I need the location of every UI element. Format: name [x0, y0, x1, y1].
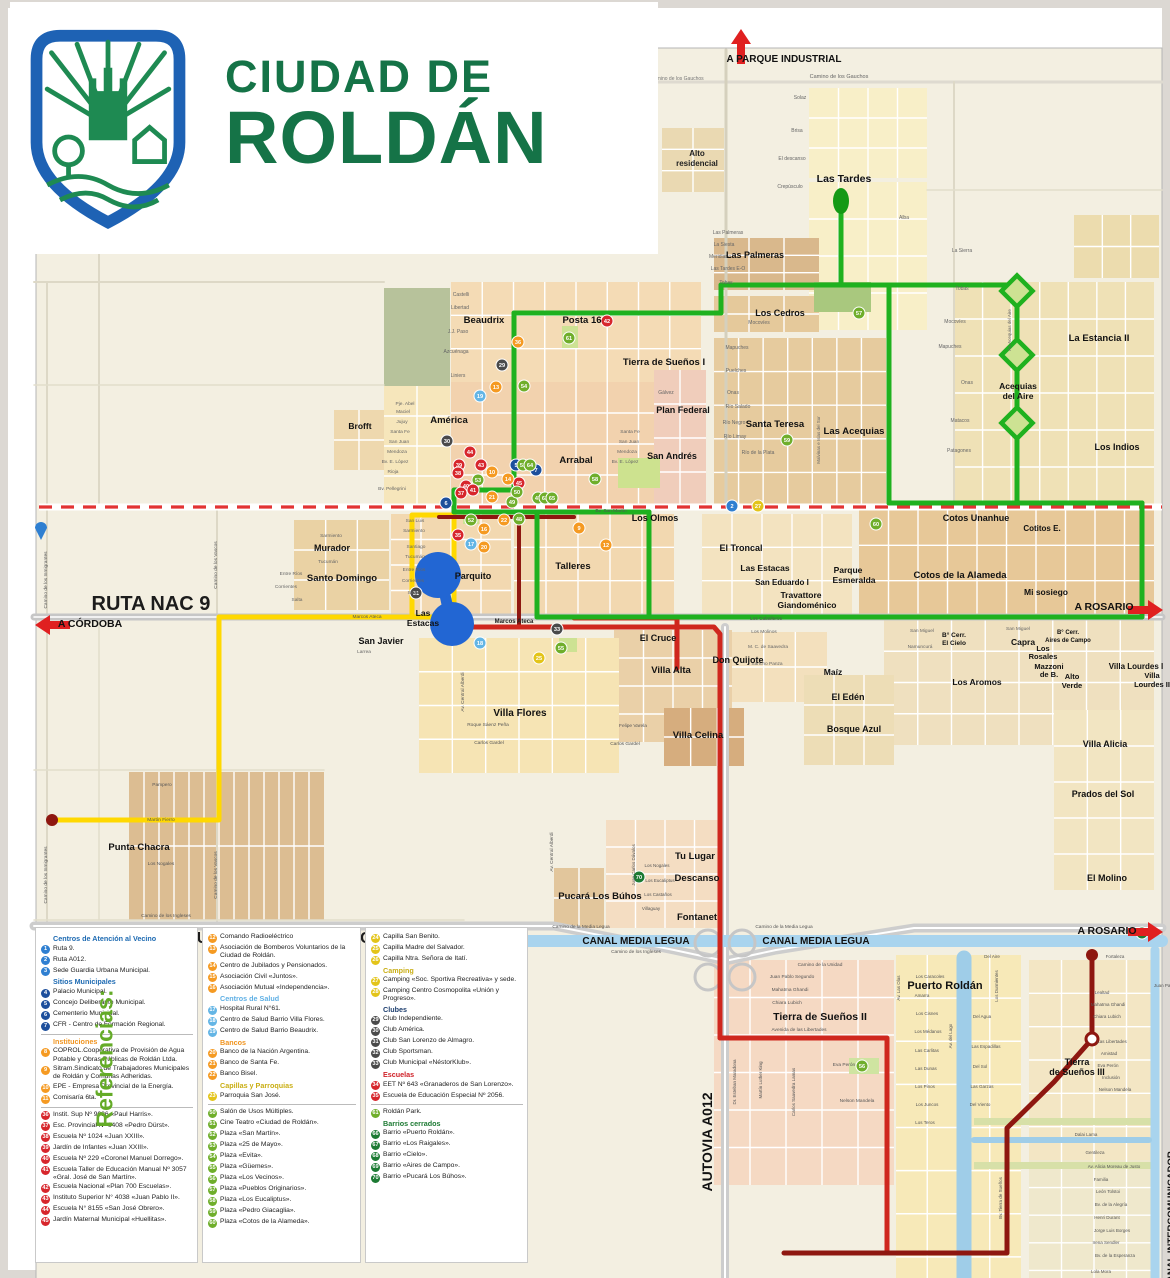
legend-item: 60Plaza «Cotos de la Alameda». [208, 1218, 356, 1228]
svg-text:14: 14 [505, 477, 512, 483]
map-label: M. C. de Saavedra [748, 644, 788, 650]
svg-text:52: 52 [468, 518, 474, 524]
map-label: Nelson Mandela [1099, 1087, 1132, 1092]
legend-badge: 11 [41, 1095, 50, 1104]
map-label: Las Espadillas [971, 1044, 1001, 1049]
map-label: Río Limay [724, 434, 747, 440]
legend-item-text: Capilla Madre del Salvador. [383, 944, 465, 954]
legend-item-text: Jardín Maternal Municipal «Huellitas». [53, 1216, 166, 1226]
legend-column-2: 12Comando Radioeléctrico13Asociación de … [202, 927, 361, 1263]
svg-text:33: 33 [554, 627, 560, 633]
map-label: Camino de la Unidad [798, 962, 843, 968]
legend-badge: 16 [208, 984, 217, 993]
map-label: Cotitos E. [1023, 524, 1060, 533]
map-label: Lola Mora [1091, 1269, 1112, 1274]
legend-title-strip: Referencias: [32, 927, 35, 1263]
map-label: El Cielo [942, 640, 966, 647]
legend-item: 58Plaza «Los Eucaliptus». [208, 1196, 356, 1206]
map-label: Juan Carlos Dávalos [631, 843, 636, 885]
map-label: Onas [961, 380, 973, 386]
svg-text:19: 19 [477, 394, 483, 400]
legend-item: 22Banco Bisel. [208, 1070, 356, 1080]
map-label: Eva Perón [1097, 1063, 1119, 1068]
map-label: Los Indios [1095, 442, 1140, 452]
map-label: Puerto Roldán [907, 980, 982, 992]
map-label: Las Palmeras [726, 250, 784, 260]
legend-badge: 38 [41, 1133, 50, 1142]
legend-title: Referencias: [92, 934, 119, 1184]
legend-badge: 19 [208, 1028, 217, 1037]
legend-item-text: Club América. [383, 1026, 425, 1036]
map-label: Alto [1065, 672, 1080, 681]
legend-badge: 8 [41, 1048, 50, 1057]
legend-item: 57Plaza «Pueblos Originarios». [208, 1185, 356, 1195]
map-label: Villa Alicia [1083, 739, 1129, 749]
map-label: Santo Domingo [307, 573, 377, 584]
legend-badge: 43 [41, 1195, 50, 1204]
legend-item: 55Plaza «Güemes». [208, 1163, 356, 1173]
map-label: Los Caracoles [916, 974, 946, 979]
map-label: El Edén [831, 692, 864, 702]
map-label: Villa Celina [673, 730, 724, 741]
map-label: Tierra [1065, 1057, 1091, 1067]
svg-text:16: 16 [481, 527, 487, 533]
map-label: Las Libertades [1097, 1039, 1127, 1044]
map-label: La Sierra [952, 248, 973, 254]
map-label: Camino de los Vascos [213, 851, 219, 899]
page-title: CIUDAD DE ROLDÁN [225, 54, 548, 175]
legend-badge: 13 [208, 945, 217, 954]
legend-badge: 17 [208, 1006, 217, 1015]
map-label: A CÓRDOBA [58, 617, 123, 630]
legend-item-text: Club Independiente. [383, 1015, 443, 1025]
legend-item: 56Plaza «Los Vecinos». [208, 1174, 356, 1184]
title-line1: CIUDAD DE [225, 54, 548, 99]
map-label: Parquito [455, 571, 492, 581]
map-label: Pucará Los Búhos [558, 891, 641, 902]
map-label: Bv. E. López [612, 459, 639, 465]
legend-badge: 33 [371, 1060, 380, 1069]
map-label: Martín Luther King [758, 1061, 763, 1099]
legend-section-header: Centros de Atención al Vecino [53, 935, 193, 944]
legend-item-text: Instituto Superior N° 4038 «Juan Pablo I… [53, 1194, 180, 1204]
svg-text:9: 9 [577, 526, 580, 532]
legend-badge: 25 [371, 945, 380, 954]
legend-item-text: Plaza «Güemes». [220, 1163, 273, 1173]
map-label: Familia [1094, 1177, 1109, 1182]
legend-item-text: Plaza «Los Vecinos». [220, 1174, 284, 1184]
legend-item: 25Capilla Madre del Salvador. [371, 944, 523, 954]
map-label: Mapuches [725, 345, 749, 351]
legend-badge: 68 [371, 1152, 380, 1161]
legend-item-text: Capilla Ntra. Señora de Itatí. [383, 955, 467, 965]
legend-badge: 24 [371, 934, 380, 943]
legend-item-text: Plaza «25 de Mayo». [220, 1141, 283, 1151]
legend-item-text: Escuela N° 8155 «San José Obrero». [53, 1205, 165, 1215]
castle-icon [89, 68, 127, 141]
legend-item-text: Banco de Santa Fe. [220, 1059, 279, 1069]
map-label: Arrabal [559, 455, 592, 466]
legend-item-text: Banco de la Nación Argentina. [220, 1048, 310, 1058]
map-label: Bv. E. López [382, 459, 409, 465]
route-end-dot [46, 814, 58, 826]
map-label: Capra [1011, 637, 1035, 647]
map-label: Plan Federal [656, 405, 710, 415]
legend-item: 18Centro de Salud Barrio Villa Flores. [208, 1016, 356, 1026]
map-label: San Javier [358, 636, 404, 646]
map-label: Entre Ríos [280, 571, 303, 577]
map-label: Malvinas e Islas del Sur [816, 416, 821, 464]
route-end-dot [1086, 949, 1098, 961]
svg-text:60: 60 [873, 522, 879, 528]
map-label: Las [416, 608, 431, 618]
map-label: Cotos de la Alameda [913, 570, 1007, 581]
legend-badge: 21 [208, 1060, 217, 1069]
map-label: El Cruce [640, 633, 677, 643]
legend-item-text: Barrio «Aires de Campo». [383, 1162, 460, 1172]
svg-text:48: 48 [516, 517, 522, 523]
map-label: Tobas [719, 280, 733, 286]
map-label: Descanso [675, 873, 720, 884]
map-label: Tucumán [318, 559, 338, 565]
legend-badge: 67 [371, 1141, 380, 1150]
map-label: Eva Perón [833, 1062, 856, 1068]
legend-item-text: Centro de Salud Barrio Beaudrix. [220, 1027, 318, 1037]
map-label: Marcos Ateca [352, 614, 381, 620]
legend-item: 17Hospital Rural N°61. [208, 1005, 356, 1015]
legend-badge: 14 [208, 962, 217, 971]
map-label: Las Carlitas [915, 1048, 940, 1053]
legend-badge: 55 [208, 1164, 217, 1173]
map-label: Del Sol [973, 1064, 988, 1069]
map-label: Las Tardes E-O [711, 266, 746, 272]
map-label: Talleres [555, 561, 590, 572]
map-label: Los Médanos [914, 1029, 942, 1034]
map-label: San Miguel [910, 628, 934, 634]
legend-item: 70Barrio «Pucará Los Búhos». [371, 1173, 523, 1183]
map-label: Rosales [1029, 652, 1058, 661]
svg-text:29: 29 [499, 363, 505, 369]
map-label: Los Nogales [148, 861, 175, 867]
legend-item-text: Centro de Salud Barrio Villa Flores. [220, 1016, 325, 1026]
svg-text:25: 25 [536, 656, 542, 662]
map-label: Giandoménico [777, 600, 836, 610]
svg-text:50: 50 [514, 490, 520, 496]
legend-badge: 45 [41, 1217, 50, 1226]
legend-badge: 5 [41, 1000, 50, 1009]
map-label: Carlos Gardel [610, 741, 640, 747]
map-label: Corrientes [275, 584, 298, 590]
map-label: Onas [727, 390, 739, 396]
district-blocks [804, 675, 894, 765]
map-label: Camino de los Inmigrantes [43, 846, 49, 904]
legend-item-text: Club Sportsman. [383, 1048, 433, 1058]
legend-badge: 30 [371, 1027, 380, 1036]
map-label: Los Caballeros [750, 616, 783, 622]
map-label: Mapuches [938, 344, 962, 350]
legend-item: 19Centro de Salud Barrio Beaudrix. [208, 1027, 356, 1037]
svg-text:21: 21 [489, 495, 495, 501]
map-label: B° Cerr. [1057, 630, 1079, 636]
map-label: Fontanet [677, 912, 718, 923]
map-label: Las Estacas [740, 563, 789, 573]
map-label: Travattore [780, 590, 821, 600]
svg-text:18: 18 [477, 641, 483, 647]
map-label: CANAL INTERCOMUNICADOR [1166, 1151, 1170, 1278]
legend-badge: 28 [371, 988, 380, 997]
legend-badge: 66 [371, 1130, 380, 1139]
legend-badge: 27 [371, 977, 380, 986]
legend-item-text: Cine Teatro «Ciudad de Roldán». [220, 1119, 319, 1129]
map-label: Alto [689, 149, 705, 158]
map-label: Lealtad [1095, 990, 1110, 995]
map-label: Las Palmeras [713, 230, 744, 236]
legend-badge: 52 [208, 1131, 217, 1140]
map-label: Juan Pablo II [1154, 983, 1170, 988]
map-label: Pje. Abel [396, 401, 415, 407]
map-label: Bv. de la Esperanza [1095, 1253, 1135, 1258]
legend-badge: 69 [371, 1163, 380, 1172]
map-label: Tucumán [405, 554, 425, 560]
map-label: Av. Alicia Moreau de Justo [1088, 1164, 1141, 1169]
map-label: Los Cisnes [916, 1011, 939, 1016]
screenshot-root: 2277655164131954614236293044393843105345… [0, 0, 1170, 1278]
svg-text:41: 41 [470, 488, 476, 494]
map-label: Larrea [357, 649, 371, 655]
map-label: Río Salado [726, 404, 751, 410]
legend-item-text: Club Municipal «NéstorKlub». [383, 1059, 471, 1069]
legend-badge: 50 [208, 1109, 217, 1118]
map-label: Aires de Campo [1045, 638, 1091, 644]
map-label: Puelches [726, 368, 747, 374]
map-label: La Siesta [714, 242, 735, 248]
legend-section-header: Clubes [383, 1006, 523, 1015]
map-label: Los Molinos [751, 629, 777, 635]
legend-badge: 29 [371, 1016, 380, 1025]
map-label: Maciel [396, 409, 410, 415]
map-label: Acequias [999, 381, 1037, 391]
svg-text:57: 57 [856, 311, 862, 317]
legend-section-header: Barrios cerrados [383, 1120, 523, 1129]
svg-text:13: 13 [493, 385, 499, 391]
map-label: Los Cedros [755, 308, 805, 318]
svg-text:53: 53 [475, 478, 481, 484]
legend-item-text: Plaza «San Martín». [220, 1130, 281, 1140]
map-label: Avenida de las Libertades [771, 1027, 827, 1033]
map-label: Bv. Pellegrini [378, 486, 406, 492]
legend-item-text: Hospital Rural N°61. [220, 1005, 281, 1015]
map-label: Entre Ríos [403, 567, 426, 573]
map-label: Jujuy [396, 419, 408, 425]
map-label: San Eduardo I [755, 578, 809, 587]
map-label: Bv. San Martín [595, 508, 627, 514]
legend-item: 21Banco de Santa Fe. [208, 1059, 356, 1069]
legend-item-text: Plaza «Pedro Giacaglia». [220, 1207, 295, 1217]
map-label: Fortaleza [1106, 954, 1125, 959]
map-label: Dalai Lama [1075, 1132, 1098, 1137]
map-label: Salta [408, 590, 419, 596]
map-label: RUTA NAC 9 [92, 593, 211, 615]
svg-text:10: 10 [489, 470, 495, 476]
map-label: Chiara Lubich [772, 1000, 802, 1006]
map-label: residencial [676, 159, 718, 168]
map-label: Sarmiento [320, 533, 342, 539]
legend-badge: 31 [371, 1038, 380, 1047]
map-label: Sarmiento [403, 528, 425, 534]
map-label: Esmeralda [833, 575, 876, 585]
legend-item-text: Asociación Civil «Juntos». [220, 973, 298, 983]
map-label: Murador [314, 543, 350, 553]
map-label: Mi sosiego [1024, 587, 1068, 597]
map-label: Av. Acequias del Aire [1007, 309, 1012, 351]
legend-item: 50Salón de Usos Múltiples. [208, 1108, 356, 1118]
map-label: Mendoza [617, 449, 637, 455]
map-label: Felipe Varela [619, 723, 647, 729]
svg-text:30: 30 [444, 439, 450, 445]
map-label: Tierra de Sueños I [623, 357, 705, 368]
map-label: Amistad [1101, 1051, 1118, 1056]
roldan-shield-icon [28, 26, 188, 231]
map-label: Gálvez [658, 390, 674, 396]
map-label: Alba [899, 215, 909, 221]
svg-text:37: 37 [458, 491, 464, 497]
map-label: Carlos Saavedra Lamas [791, 1067, 796, 1116]
legend-item: 45Jardín Maternal Municipal «Huellitas». [41, 1216, 193, 1226]
legend-badge: 22 [208, 1071, 217, 1080]
legend-badge: 59 [208, 1208, 217, 1217]
legend-badge: 2 [41, 956, 50, 965]
map-label: Patagones [947, 448, 971, 454]
map-label: Inclusión [1102, 1075, 1120, 1080]
map-label: San Luis [406, 518, 425, 524]
legend-item: 33Club Municipal «NéstorKlub». [371, 1059, 523, 1069]
map-label: Rioja [388, 469, 399, 475]
map-label: Camino de los Gauchos [650, 76, 704, 82]
legend-panel: Referencias: Centros de Atención al Veci… [32, 927, 532, 1263]
map-label: Liniers [451, 373, 466, 379]
legend-badge: 51 [208, 1120, 217, 1129]
map-label: Av. Central Alberdi [460, 672, 466, 711]
map-label: Nelson Mandela [840, 1098, 875, 1104]
legend-section-header: Instituciones [53, 1038, 193, 1047]
map-label: Jorge Luis Borges [1094, 1228, 1131, 1233]
svg-text:65: 65 [549, 496, 555, 502]
legend-item: 16Asociación Mutual «Independencia». [208, 984, 356, 994]
legend-item-text: Plaza «Evita». [220, 1152, 263, 1162]
legend-badge: 34 [371, 1081, 380, 1090]
map-label: del Aire [1003, 391, 1034, 401]
map-label: Las Acequias [824, 426, 885, 437]
legend-badge: 39 [41, 1144, 50, 1153]
legend-item: 61Roldán Park. [371, 1108, 523, 1118]
map-label: Don Quijote [713, 655, 764, 665]
svg-text:20: 20 [481, 545, 487, 551]
svg-text:58: 58 [592, 477, 598, 483]
legend-item-text: Plaza «Cotos de la Alameda». [220, 1218, 310, 1228]
legend-badge: 20 [208, 1049, 217, 1058]
legend-badge: 40 [41, 1155, 50, 1164]
map-label: Chiara Lubich [1093, 1014, 1121, 1019]
map-label: Lourdes II [1134, 680, 1170, 689]
map-label: Tierra de Sueños II [773, 1011, 867, 1023]
map-label: América [430, 415, 468, 426]
legend-column-3: 24Capilla San Benito.25Capilla Madre del… [365, 927, 528, 1263]
map-label: Los Castaños [644, 892, 672, 897]
map-label: Azcuénaga [443, 349, 468, 355]
legend-badge: 6 [41, 1011, 50, 1020]
map-label: Namuncurá [908, 644, 933, 650]
map-label: San Miguel [1006, 626, 1030, 632]
map-label: Matacos [951, 418, 970, 424]
map-label: CANAL MEDIA LEGUA [762, 936, 869, 947]
legend-item-text: Salón de Usos Múltiples. [220, 1108, 294, 1118]
map-label: Crepúsculo [777, 184, 803, 190]
district-blocks [1054, 710, 1154, 890]
map-label: Camino de los Gauchos [810, 74, 869, 80]
map-label: A ROSARIO [1074, 601, 1133, 613]
map-label: El descanso [778, 156, 805, 162]
legend-badge: 10 [41, 1084, 50, 1093]
legend-badge: 26 [371, 956, 380, 965]
svg-text:36: 36 [515, 340, 521, 346]
legend-item: 12Comando Radioeléctrico [208, 933, 356, 943]
map-label: Libertad [451, 305, 469, 311]
map-label: Martín Fierro [147, 817, 175, 823]
legend-item-text: Asociación Mutual «Independencia». [220, 984, 329, 994]
map-label: Amarra [915, 993, 930, 998]
map-label: Mendoza [387, 449, 407, 455]
legend-badge: 37 [41, 1122, 50, 1131]
legend-item: 43Instituto Superior N° 4038 «Juan Pablo… [41, 1194, 193, 1204]
legend-item-text: Club San Lorenzo de Almagro. [383, 1037, 474, 1047]
legend-item: 59Plaza «Pedro Giacaglia». [208, 1207, 356, 1217]
legend-item: 42Escuela Nacional «Plan 700 Escuelas». [41, 1183, 193, 1193]
legend-item-text: Camping Centro Cosmopolita «Unión y Prog… [383, 987, 523, 1003]
map-label: A ROSARIO [1077, 925, 1136, 937]
svg-text:44: 44 [467, 450, 474, 456]
legend-item-text: Ruta A012. [53, 956, 86, 966]
svg-text:54: 54 [521, 384, 528, 390]
svg-text:61: 61 [566, 336, 572, 342]
svg-text:2: 2 [730, 504, 733, 510]
map-label: Santa Fe [390, 429, 410, 435]
legend-badge: 12 [208, 934, 217, 943]
legend-badge: 60 [208, 1219, 217, 1228]
legend-item: 67Barrio «Los Raigales». [371, 1140, 523, 1150]
legend-badge: 3 [41, 967, 50, 976]
map-label: Tobas [955, 286, 969, 292]
map-label: Las Tardes [817, 173, 872, 185]
svg-text:38: 38 [455, 471, 461, 477]
legend-item-text: EET Nº 643 «Granaderos de San Lorenzo». [383, 1081, 514, 1091]
map-label: Los Teros [915, 1120, 935, 1125]
map-label: CANAL MEDIA LEGUA [582, 936, 689, 947]
route-terminus-icon [833, 188, 849, 214]
svg-text:27: 27 [755, 504, 761, 510]
map-label: Henri Durant [1094, 1215, 1120, 1220]
legend-item: 44Escuela N° 8155 «San José Obrero». [41, 1205, 193, 1215]
legend-item: 34EET Nº 643 «Granaderos de San Lorenzo»… [371, 1081, 523, 1091]
map-label: Mahatma Ghandi [1091, 1002, 1126, 1007]
map-label: Dr. Esteban Maradona [732, 1059, 737, 1105]
legend-item-text: Sitram.Sindicato de Trabajadores Municip… [53, 1065, 193, 1081]
map-label: Solaz [794, 95, 807, 101]
map-label: Corrientes [402, 578, 425, 584]
map-label: de Sueños III [1049, 1067, 1105, 1077]
map-label: Irena Sendler [1092, 1240, 1120, 1245]
map-label: Los Aromos [952, 677, 1002, 687]
map-label: Del Aire [984, 954, 1000, 959]
